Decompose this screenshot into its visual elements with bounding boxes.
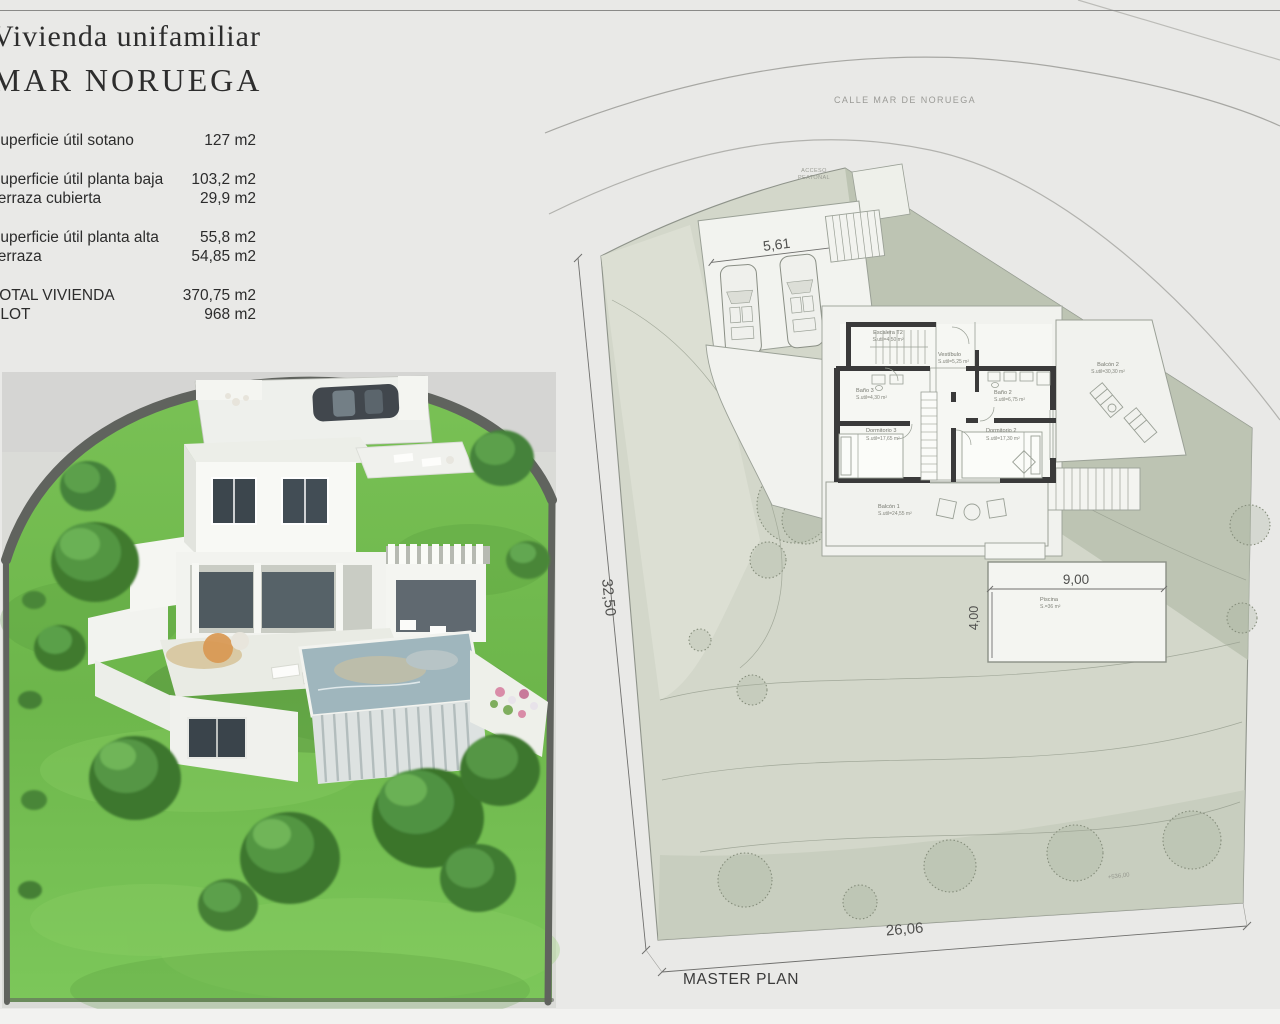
room-label: Dormitorio 3 (866, 428, 896, 434)
master-plan-caption: MASTER PLAN (683, 971, 799, 989)
table-row: Terraza 54,85 m2 (0, 247, 256, 266)
svg-text:4,00: 4,00 (967, 606, 981, 630)
title-line2: MAR NORUEGA (0, 60, 262, 100)
street-label: CALLE MAR DE NORUEGA (834, 95, 976, 105)
access-label: ACCESO (801, 168, 827, 174)
room-label: Escalera T2 (873, 330, 903, 336)
room-label: Piscina (1040, 597, 1059, 603)
table-row: Terraza cubierta 29,9 m2 (0, 189, 256, 208)
balcony2-terrace: Balcón 2 S.util=30,30 m² (1056, 320, 1186, 462)
table-row: PLOT 968 m2 (0, 305, 256, 324)
top-frame-line (0, 10, 1280, 11)
area-value: 370,75 m2 (183, 286, 256, 305)
svg-text:32,50: 32,50 (598, 578, 619, 617)
area-label: Superficie útil planta baja (0, 170, 163, 189)
house-plan: Escalera T2 S.util=4,50 m² Vestíbulo S.u… (834, 322, 1056, 483)
area-label: PLOT (0, 305, 30, 324)
room-area-label: S.=36 m² (1040, 604, 1061, 610)
room-area-label: S.util=24,55 m² (878, 511, 912, 517)
table-row: Superficie útil planta alta 55,8 m2 (0, 228, 256, 247)
svg-text:26,06: 26,06 (885, 920, 924, 940)
area-value: 968 m2 (204, 305, 256, 324)
room-label: Balcón 1 (878, 504, 900, 510)
room-label: Baño 3 (856, 388, 874, 394)
bottom-strip (0, 1009, 1280, 1024)
area-value: 54,85 m2 (191, 247, 256, 266)
area-label: Terraza (0, 247, 42, 266)
room-label: Balcón 2 (1097, 362, 1119, 368)
room-label: Baño 2 (994, 390, 1012, 396)
room-area-label: S.util=17,30 m² (986, 436, 1020, 442)
room-area-label: S.util=17,65 m² (866, 436, 900, 442)
table-row: Superficie útil planta baja 103,2 m2 (0, 170, 256, 189)
area-label: Terraza cubierta (0, 189, 101, 208)
exterior-stairs (825, 210, 884, 262)
area-value: 103,2 m2 (191, 170, 256, 189)
room-label: Vestíbulo (938, 352, 961, 358)
room-area-label: S.util=5,25 m² (938, 359, 969, 365)
access-label: PEATONAL (798, 175, 830, 181)
area-value: 127 m2 (204, 131, 256, 150)
master-plan-drawing: CALLE MAR DE NORUEGA +536,00 (545, 0, 1280, 976)
table-row: Superficie útil sotano 127 m2 (0, 131, 256, 150)
room-area-label: S.util=6,75 m² (994, 397, 1025, 403)
room-label: Dormitorio 2 (986, 428, 1016, 434)
title-line1: Vivienda unifamiliar (0, 18, 262, 56)
area-table: Superficie útil sotano 127 m2 Superficie… (0, 131, 256, 324)
area-value: 55,8 m2 (200, 228, 256, 247)
area-label: TOTAL VIVIENDA (0, 286, 115, 305)
area-label: Superficie útil sotano (0, 131, 134, 150)
room-area-label: S.util=4,50 m² (873, 337, 904, 343)
table-row: TOTAL VIVIENDA 370,75 m2 (0, 286, 256, 305)
car-icon (312, 383, 400, 421)
room-area-label: S.util=30,30 m² (1091, 369, 1125, 375)
svg-text:5,61: 5,61 (762, 235, 791, 254)
car-icon (720, 264, 762, 356)
page-title: Vivienda unifamiliar MAR NORUEGA (0, 18, 262, 100)
room-area-label: S.util=4,30 m² (856, 395, 887, 401)
area-label: Superficie útil planta alta (0, 228, 159, 247)
render-3d (0, 372, 560, 1024)
svg-text:9,00: 9,00 (1063, 572, 1089, 587)
balcony1-terrace: Balcón 1 S.util=24,55 m² (826, 482, 1048, 546)
terrace-stairs (1048, 468, 1140, 510)
area-value: 29,9 m2 (200, 189, 256, 208)
